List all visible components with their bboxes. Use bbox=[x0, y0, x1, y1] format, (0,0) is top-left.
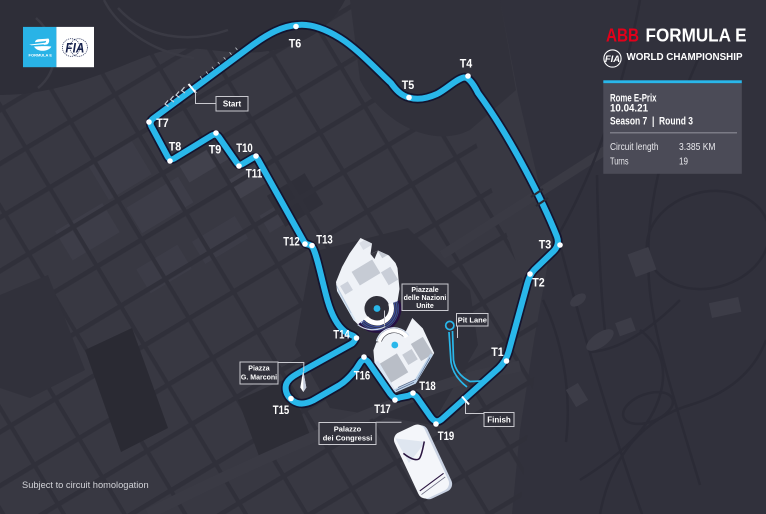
svg-text:T1: T1 bbox=[491, 345, 504, 359]
svg-text:T4: T4 bbox=[460, 57, 473, 71]
svg-text:3.385 KM: 3.385 KM bbox=[679, 142, 716, 153]
svg-text:T13: T13 bbox=[316, 233, 333, 247]
svg-text:ABB: ABB bbox=[606, 26, 639, 46]
svg-text:Start: Start bbox=[223, 100, 242, 109]
svg-text:Turns: Turns bbox=[610, 157, 629, 168]
svg-text:T18: T18 bbox=[419, 379, 436, 393]
svg-text:FIA: FIA bbox=[65, 39, 84, 55]
svg-text:Palazzo: Palazzo bbox=[334, 425, 362, 434]
svg-text:Finish: Finish bbox=[487, 416, 511, 425]
svg-text:T2: T2 bbox=[532, 276, 545, 290]
svg-text:G. Marconi: G. Marconi bbox=[241, 375, 277, 382]
svg-text:T6: T6 bbox=[289, 37, 302, 51]
svg-text:FIA: FIA bbox=[605, 54, 620, 65]
svg-text:delle Nazioni: delle Nazioni bbox=[404, 295, 447, 302]
svg-text:10.04.21: 10.04.21 bbox=[610, 103, 648, 115]
svg-text:19: 19 bbox=[679, 157, 688, 168]
svg-text:T3: T3 bbox=[539, 238, 552, 252]
svg-text:T19: T19 bbox=[438, 429, 455, 443]
svg-text:T10: T10 bbox=[236, 141, 253, 155]
svg-text:T5: T5 bbox=[402, 78, 415, 92]
svg-text:T11: T11 bbox=[246, 167, 263, 181]
svg-text:dei Congressi: dei Congressi bbox=[323, 434, 373, 443]
svg-text:T8: T8 bbox=[169, 140, 182, 154]
svg-text:T12: T12 bbox=[283, 235, 300, 249]
svg-text:WORLD CHAMPIONSHIP: WORLD CHAMPIONSHIP bbox=[627, 52, 743, 63]
svg-text:T7: T7 bbox=[156, 116, 169, 130]
svg-text:T15: T15 bbox=[273, 403, 290, 417]
svg-text:T16: T16 bbox=[354, 369, 371, 383]
svg-text:T17: T17 bbox=[374, 402, 391, 416]
svg-text:T9: T9 bbox=[209, 143, 222, 157]
svg-text:FORMULA E: FORMULA E bbox=[646, 26, 747, 46]
svg-text:Unite: Unite bbox=[416, 303, 434, 310]
svg-text:T14: T14 bbox=[333, 328, 350, 342]
svg-text:Pit Lane: Pit Lane bbox=[458, 316, 487, 325]
svg-text:Subject to circuit homologatio: Subject to circuit homologation bbox=[22, 480, 149, 490]
svg-text:Piazza: Piazza bbox=[248, 366, 270, 373]
svg-text:FORMULA E: FORMULA E bbox=[29, 53, 53, 58]
svg-text:Piazzale: Piazzale bbox=[411, 287, 438, 294]
svg-text:Season 7 | Round 3: Season 7 | Round 3 bbox=[610, 116, 693, 128]
svg-text:Circuit length: Circuit length bbox=[610, 142, 659, 153]
